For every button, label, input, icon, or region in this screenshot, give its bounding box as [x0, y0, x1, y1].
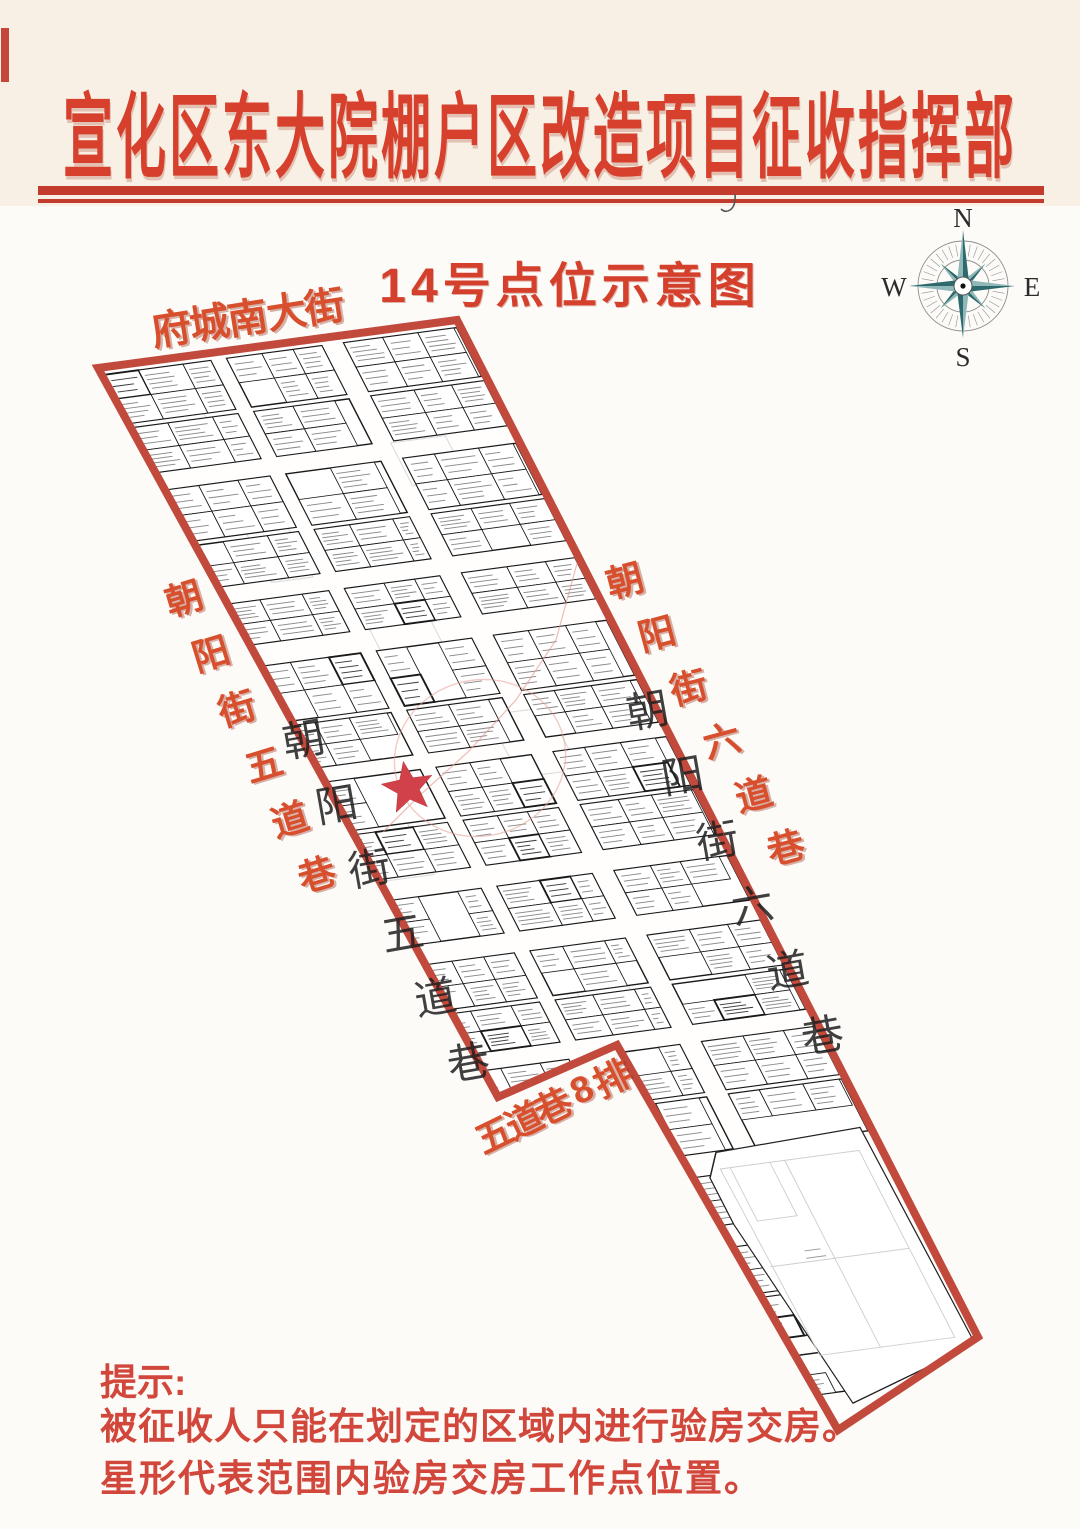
parcel-cell — [598, 1186, 646, 1215]
compass-w-label: W — [881, 272, 907, 302]
compass-tick — [942, 312, 948, 322]
parcel-cell — [692, 1365, 734, 1389]
compass-tick — [924, 296, 935, 300]
parcel-text-lines — [628, 1317, 659, 1330]
compass-n-label: N — [953, 203, 973, 233]
parcel-text-lines — [570, 1146, 597, 1163]
compass-s-label: S — [955, 342, 970, 372]
hint-line-1: 被征收人只能在划定的区域内进行验房交房。 — [100, 1396, 860, 1450]
parcel-text-lines — [546, 1226, 580, 1241]
parcel-cell — [610, 1210, 658, 1239]
parcel-text-lines — [728, 1327, 753, 1339]
poster-page: 宣化区东大院棚户区改造项目征收指挥部 14号点位示意图 — [0, 0, 1080, 1529]
compass-tick — [968, 245, 970, 257]
parcel-cell — [659, 1306, 705, 1331]
compass-tick — [936, 309, 944, 318]
parcel-text-lines — [668, 1209, 707, 1225]
parcel-text-lines — [659, 1285, 685, 1300]
compass-e-label: E — [1024, 272, 1041, 302]
compass-tick — [993, 279, 1005, 281]
compass-tick — [989, 301, 999, 307]
parcel-text-lines — [748, 1364, 781, 1376]
parcel-cell — [711, 1300, 752, 1324]
parcel-cell — [588, 1316, 632, 1341]
compass-rose-icon: N E S W — [881, 203, 1040, 372]
compass-tick — [922, 291, 934, 293]
compass-tick — [922, 279, 934, 281]
compass-tick — [942, 250, 948, 260]
parcel-text-lines — [618, 1112, 655, 1129]
compass-tick — [993, 291, 1005, 293]
compass-tick — [927, 265, 937, 271]
parcel-cell — [574, 1287, 630, 1316]
parcel-text-lines — [692, 1257, 715, 1270]
parcel-cell — [532, 1144, 577, 1174]
parcel-cell — [697, 1273, 740, 1300]
parcel-text-lines — [639, 1339, 666, 1351]
compass-tick — [924, 272, 935, 276]
parcel-cell — [633, 1332, 681, 1357]
compass-tick — [956, 245, 958, 257]
parcel-cell — [741, 1357, 792, 1382]
parcel-text-lines — [605, 1343, 634, 1356]
compass-tick — [973, 314, 977, 325]
parcel-cell — [562, 1264, 618, 1293]
parcel-text-lines — [703, 1280, 727, 1293]
parcel-text-lines — [699, 1372, 722, 1384]
compass-tick — [991, 296, 1002, 300]
parcel-text-lines — [657, 1376, 691, 1389]
parcel-cell — [618, 1283, 664, 1311]
parcel-text-lines — [631, 1137, 672, 1156]
parcel-text-lines — [647, 1262, 674, 1277]
parcel-block — [588, 1306, 716, 1361]
compass-tick — [949, 314, 953, 325]
parcel-cell — [564, 1139, 609, 1169]
parcel-text-lines — [613, 1267, 642, 1281]
parcel-text-lines — [665, 1313, 695, 1325]
site-map: N E S W — [0, 0, 1080, 1529]
street-label-fuchengnan-char: 街 — [300, 272, 349, 336]
parcel-cell — [685, 1249, 728, 1276]
parcel-block — [562, 1256, 693, 1317]
parcel-text-lines — [582, 1221, 611, 1237]
parcel-cell — [622, 1311, 670, 1336]
parcel-cell — [564, 1191, 610, 1219]
parcel-cell — [651, 1369, 702, 1394]
parcel-text-lines — [624, 1381, 651, 1393]
parcel-cell — [641, 1256, 681, 1283]
compass-tick — [986, 259, 995, 267]
parcel-cell — [653, 1279, 693, 1306]
compass-tick — [989, 265, 999, 271]
parcel-text-lines — [580, 1295, 614, 1309]
parcel-cell — [670, 1327, 716, 1352]
compass-tick — [982, 309, 990, 318]
parcel-cell — [599, 1337, 643, 1362]
parcel-text-lines — [570, 1198, 600, 1212]
hint-line-2: 星形代表范围内验房交房工作点位置。 — [100, 1448, 763, 1502]
compass-tick — [931, 259, 940, 267]
parcel-text-lines — [595, 1323, 623, 1335]
compass-tick — [991, 272, 1002, 276]
parcel-text-lines — [718, 1306, 744, 1319]
compass-tick — [931, 305, 940, 313]
parcel-text-lines — [604, 1193, 629, 1208]
compass-tick — [973, 247, 977, 258]
compass-tick — [978, 312, 984, 322]
parcel-text-lines — [539, 1152, 562, 1167]
compass-tick — [949, 247, 953, 258]
parcel-text-lines — [676, 1334, 703, 1347]
parcel-text-lines — [568, 1270, 610, 1287]
compass-tick — [956, 316, 958, 328]
parcel-text-lines — [616, 1217, 647, 1232]
parcel-text-lines — [655, 1185, 693, 1202]
map-clip-group — [104, 328, 998, 1431]
print-artifact-mark — [721, 194, 735, 211]
parcel-cell — [539, 1219, 589, 1248]
compass-tick — [982, 254, 990, 263]
compass-tick — [927, 301, 937, 307]
compass-tick — [986, 305, 995, 313]
parcel-cell — [576, 1215, 622, 1243]
parcel-grid — [104, 328, 998, 1431]
parcel-cell — [722, 1321, 763, 1345]
parcel-cell — [607, 1259, 653, 1287]
parcel-text-lines — [758, 1384, 794, 1397]
parcel-block — [526, 1186, 658, 1248]
parcel-text-lines — [625, 1290, 655, 1304]
compass-tick — [936, 254, 944, 263]
compass-tick — [968, 316, 970, 328]
parcel-text-lines — [509, 1155, 538, 1172]
compass-tick — [978, 250, 984, 260]
